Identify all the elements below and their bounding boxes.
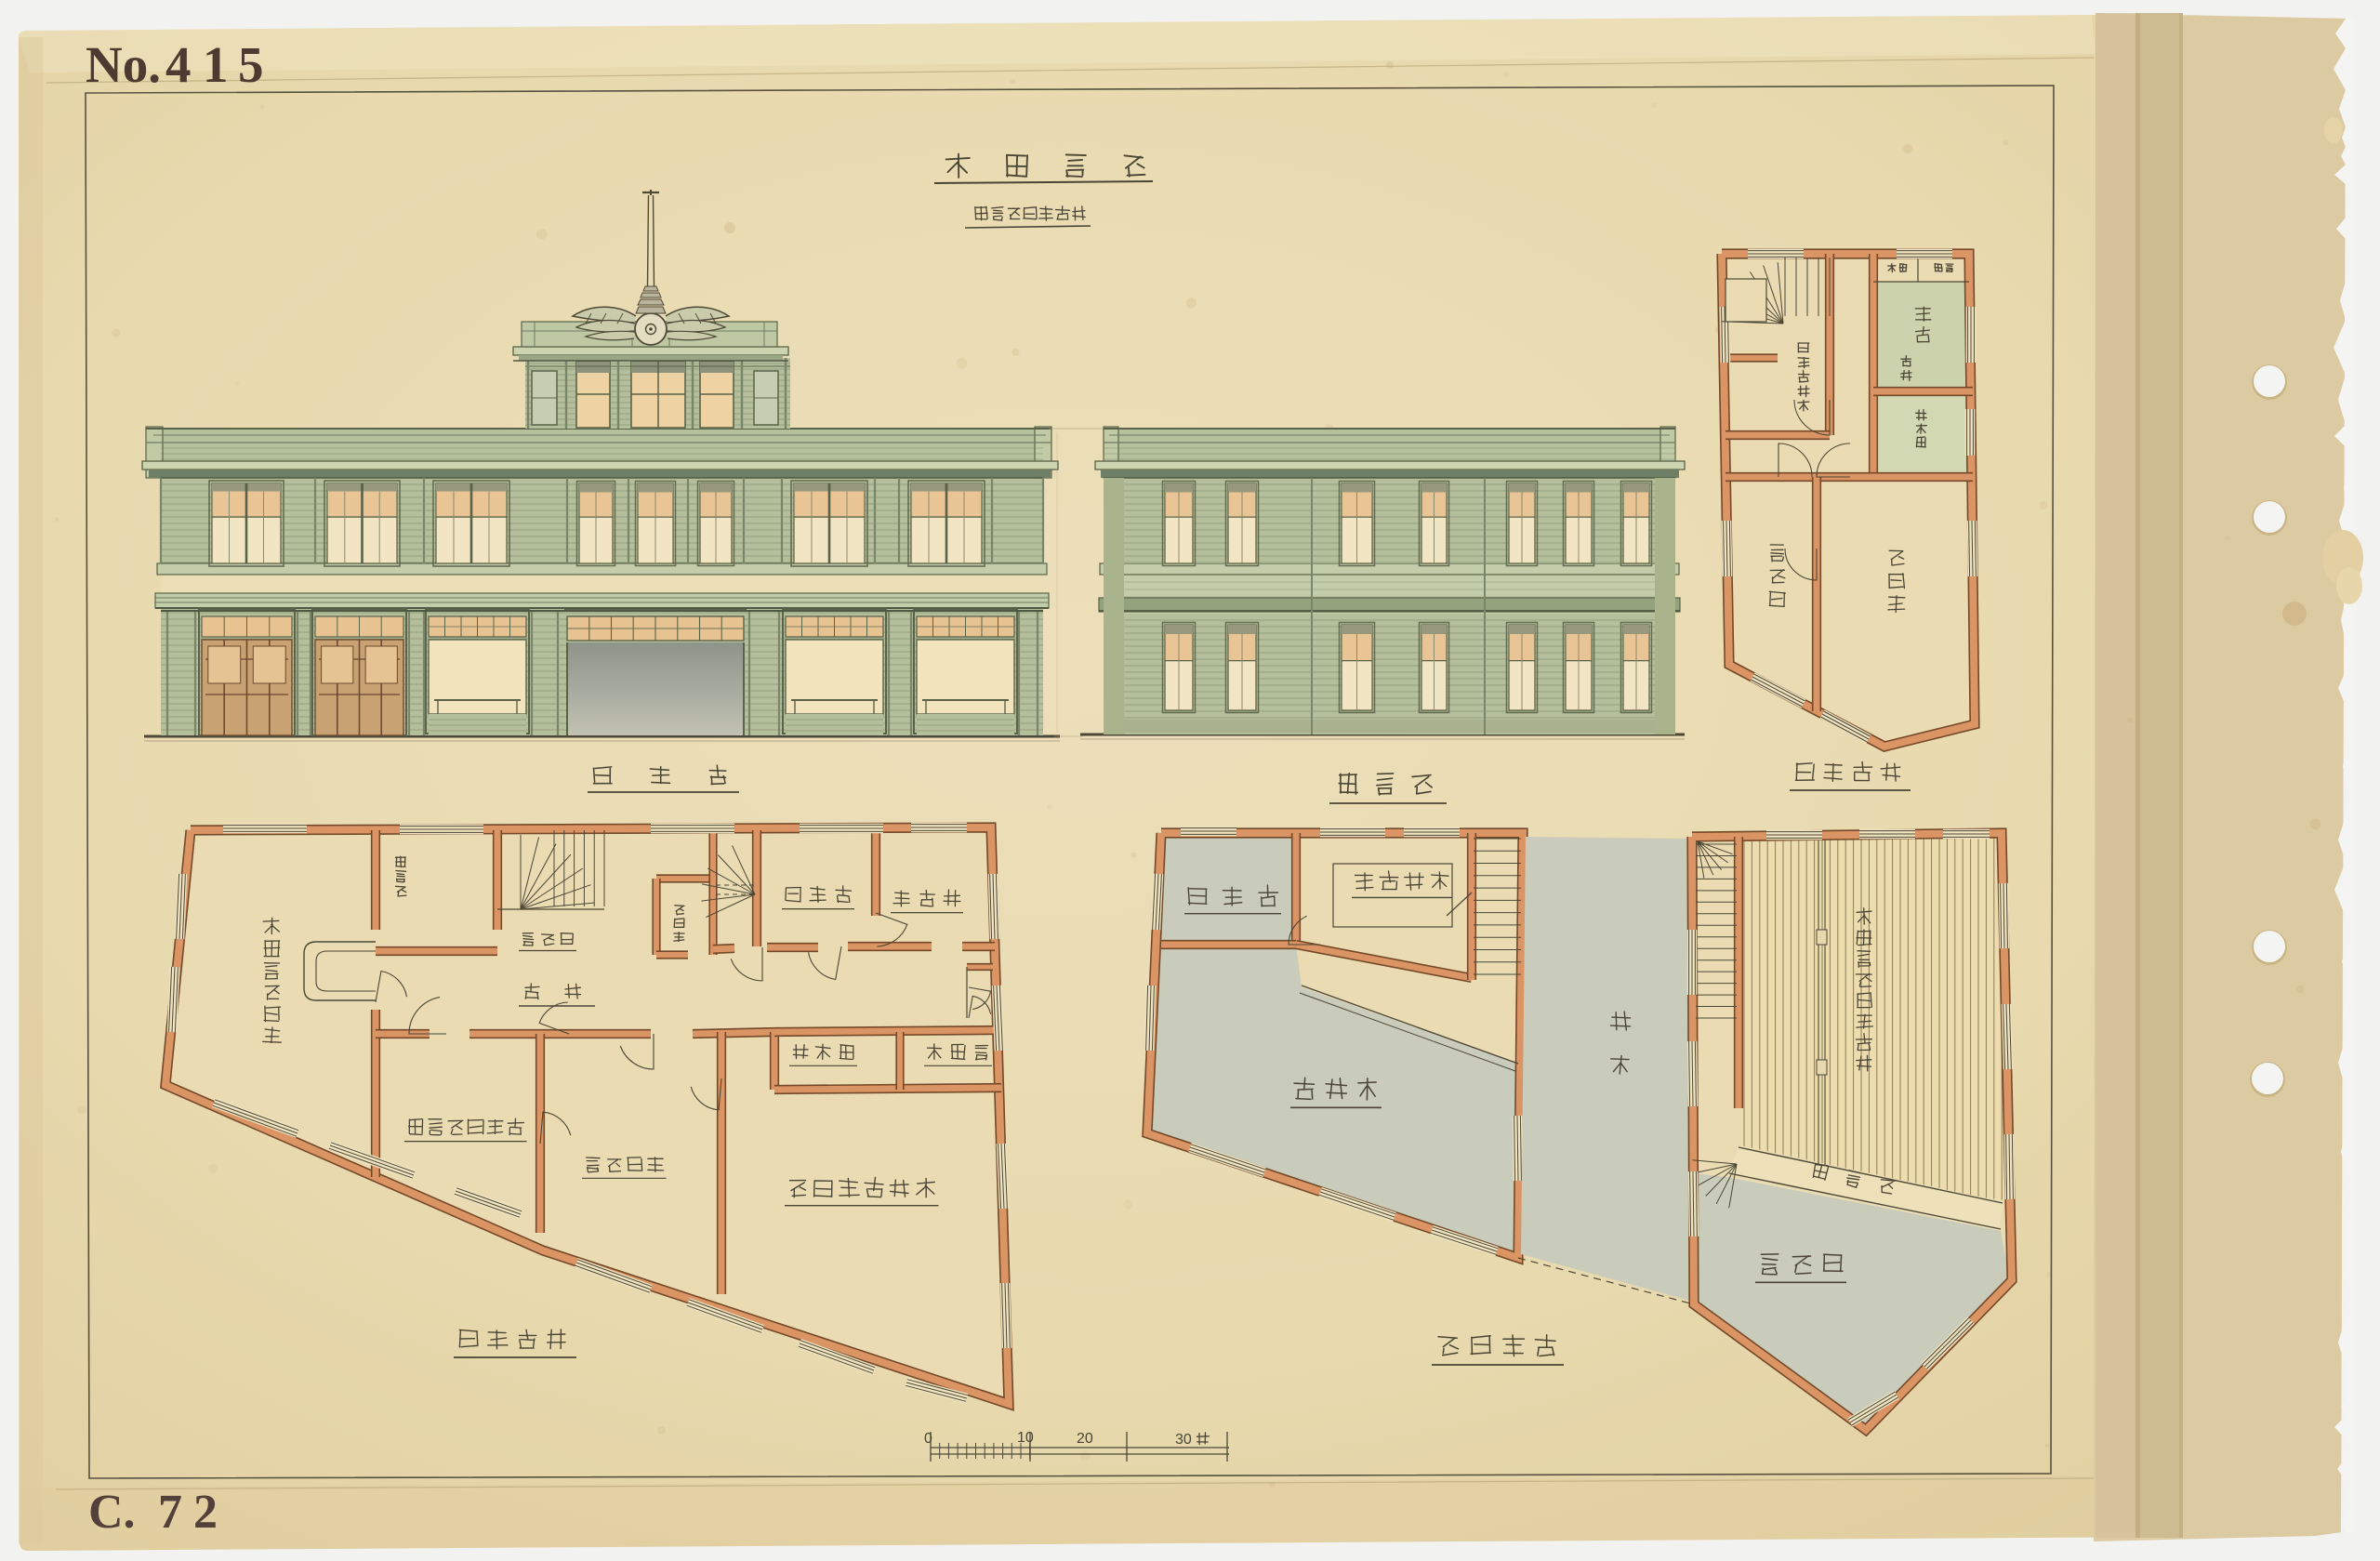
svg-text:1: 1 [203, 36, 229, 93]
svg-text:5: 5 [238, 36, 264, 93]
svg-text:No.: No. [86, 36, 161, 93]
svg-text:20: 20 [1077, 1431, 1093, 1447]
svg-text:7: 7 [158, 1486, 182, 1539]
svg-text:4: 4 [165, 36, 192, 93]
svg-text:C.: C. [88, 1486, 136, 1539]
svg-text:30: 30 [1175, 1432, 1192, 1448]
svg-text:10: 10 [1017, 1430, 1034, 1446]
svg-text:2: 2 [193, 1486, 218, 1539]
svg-text:0: 0 [924, 1431, 932, 1447]
